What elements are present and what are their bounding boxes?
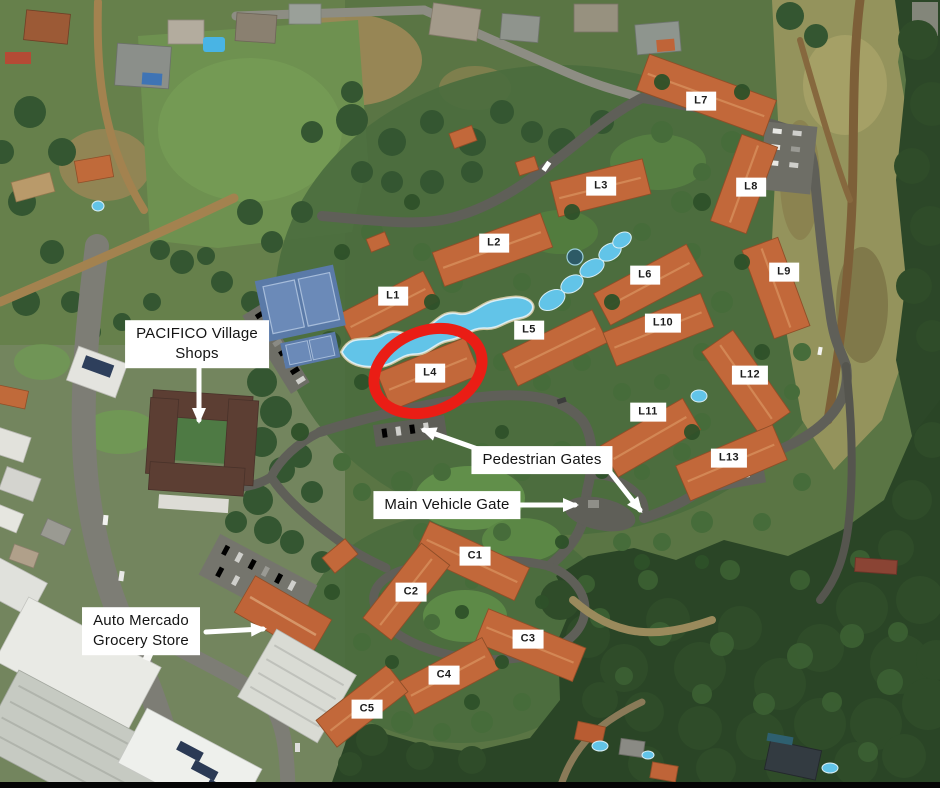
- satellite-map-art: [0, 0, 940, 788]
- map-canvas: L1L2L3L4L5L6L7L8L9L10L11L12L13C1C2C3C4C5…: [0, 0, 940, 788]
